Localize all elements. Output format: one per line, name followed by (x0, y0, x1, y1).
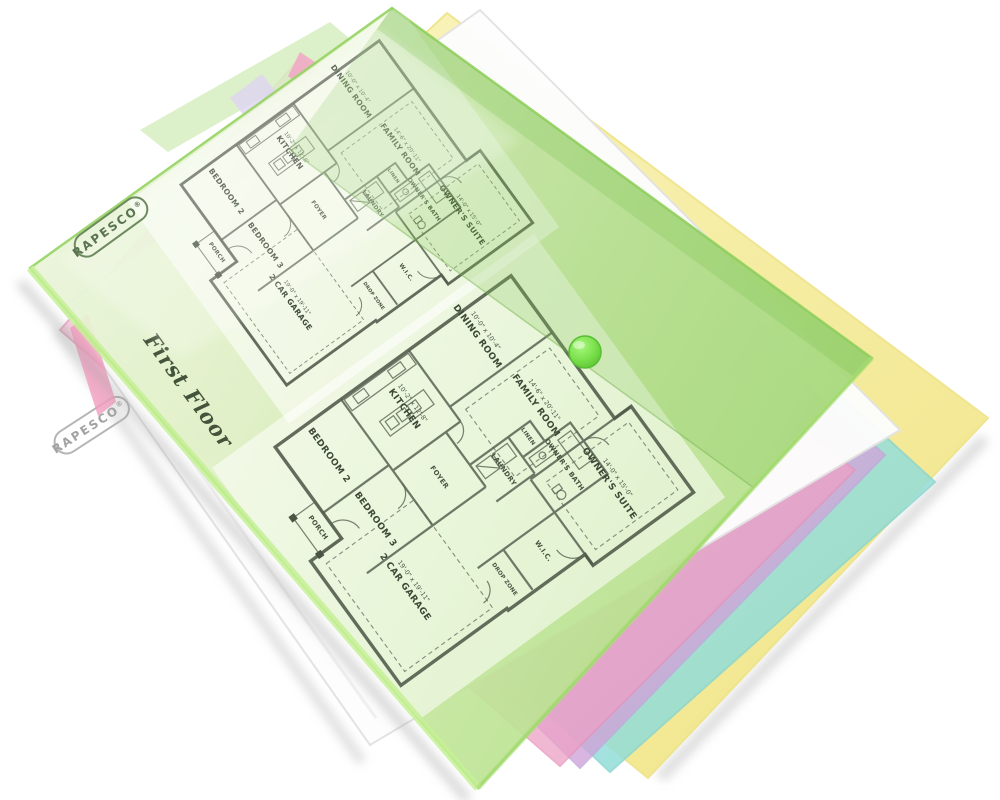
snap-button (569, 336, 601, 368)
snap-button-highlight (573, 341, 585, 349)
photo-scene: DINING ROOM 10'-0" x 10'-4" KITCHEN 10'-… (0, 0, 1000, 800)
product-photo: DINING ROOM 10'-0" x 10'-4" KITCHEN 10'-… (0, 0, 1000, 800)
